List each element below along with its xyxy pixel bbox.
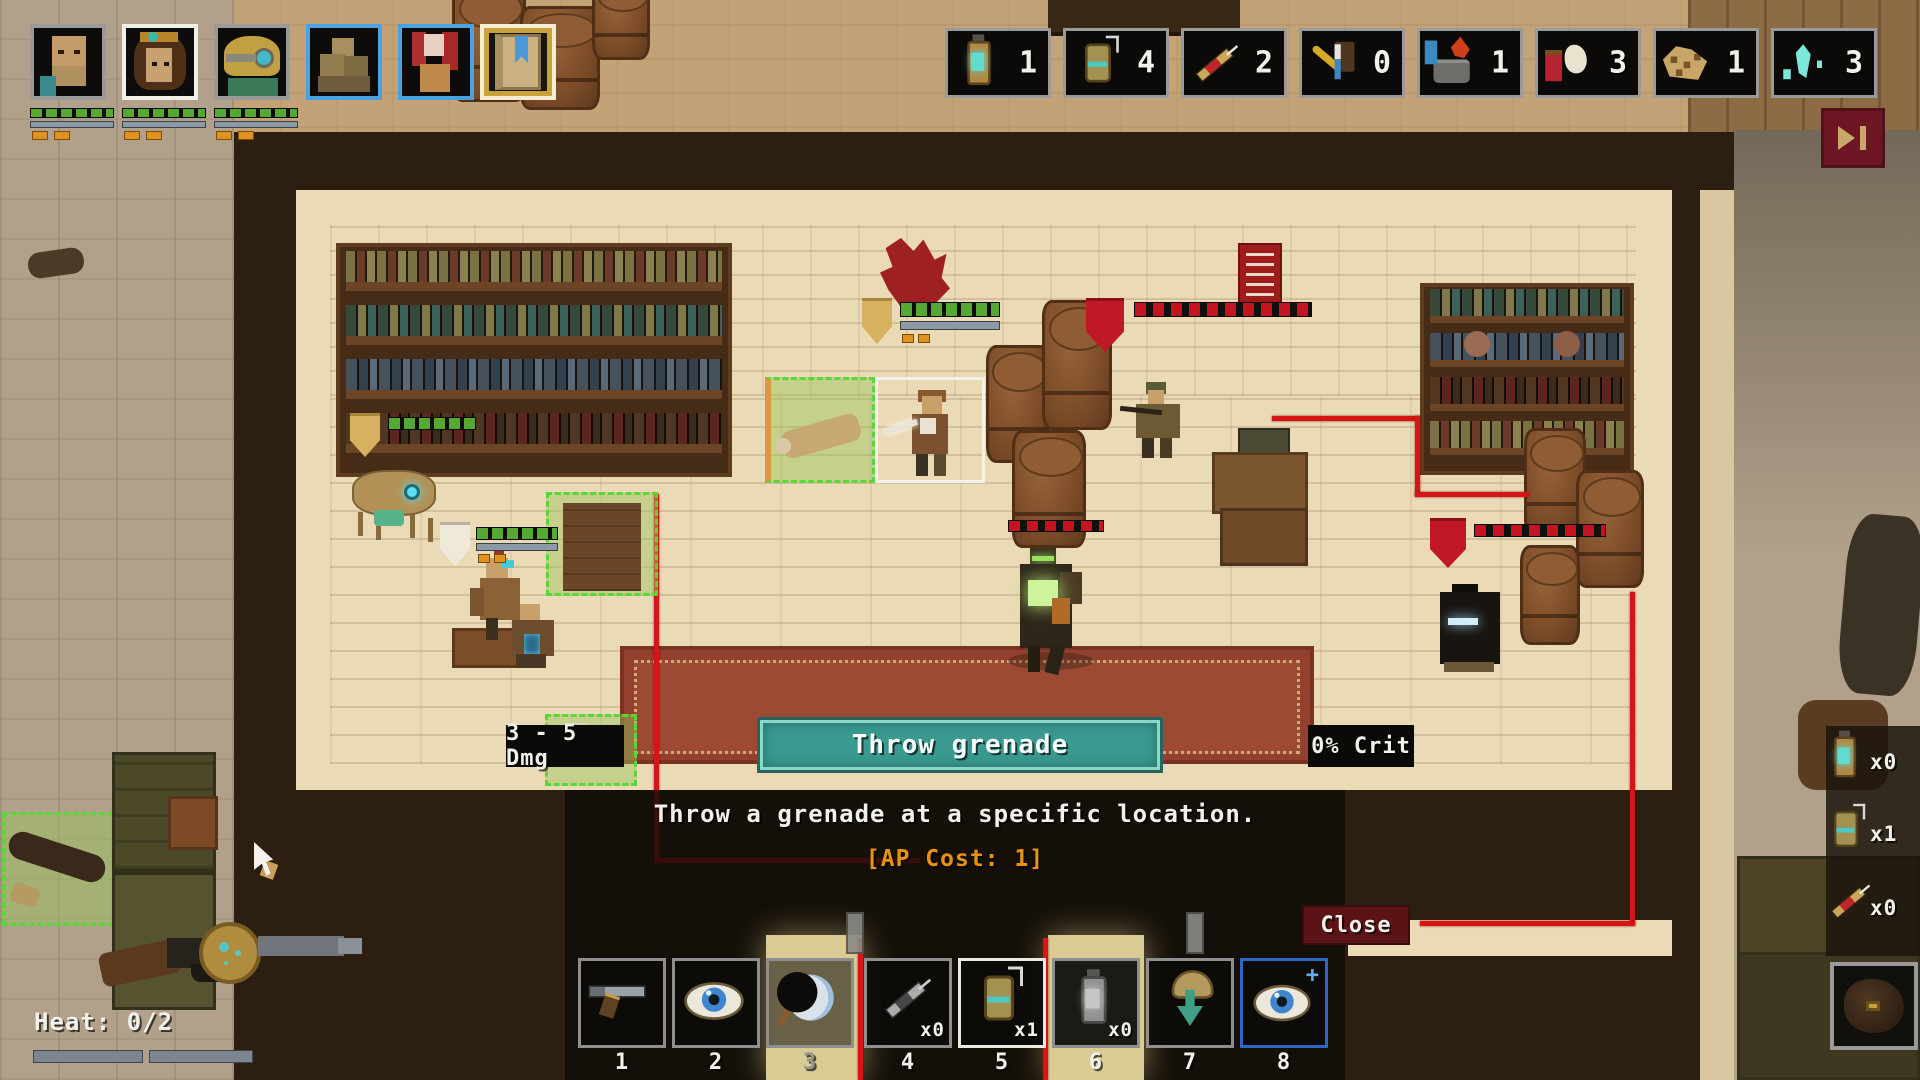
hotbar-key-7: 7 [1146, 1050, 1234, 1075]
ap-pip [146, 131, 162, 140]
crescent-moon-icon [782, 972, 833, 1026]
ap-pip [32, 131, 48, 140]
toolkit-icon [1310, 42, 1355, 85]
damage-value: 3 - 5 Dmg [506, 721, 624, 771]
heat-label: Heat: 0/2 [34, 1008, 173, 1036]
hotbar-slot-6[interactable]: x0 [1052, 958, 1140, 1048]
enemy-zone-line [858, 938, 863, 1080]
stim-syringe-icon [1192, 42, 1237, 85]
hotbar-slot-3[interactable] [766, 958, 854, 1048]
portrait-helmet-trooper[interactable] [214, 24, 290, 100]
end-turn-button[interactable] [1821, 108, 1885, 168]
crate [1212, 452, 1308, 514]
journal-button[interactable] [480, 24, 556, 100]
inventory-slot-medkit[interactable]: 3 [1535, 28, 1641, 98]
hotbar-count: x1 [1014, 1019, 1039, 1041]
hotbar-slot-2[interactable] [672, 958, 760, 1048]
enemy-zone-line [1415, 416, 1420, 496]
inventory-slot-crystal-shards[interactable]: 3 [1771, 28, 1877, 98]
inventory-slot-lantern[interactable]: 1 [945, 28, 1051, 98]
heat-segment [33, 1050, 143, 1063]
ally-armor-bar [900, 321, 1000, 330]
ap-pip [54, 131, 70, 140]
item-count: 3 [1609, 46, 1628, 81]
enemy-hp-bar [1134, 302, 1312, 317]
eye-icon [684, 982, 743, 1020]
door-prop [563, 503, 641, 591]
party-hp-bar [214, 108, 298, 118]
camp-stove-icon [1427, 43, 1475, 83]
visor-glow [1032, 556, 1054, 561]
device-glow [524, 634, 540, 654]
item-count: 3 [1845, 46, 1864, 81]
item-count: 1 [1491, 46, 1510, 81]
shotgun-pickup[interactable] [95, 916, 365, 996]
hotbar-key-2: 2 [672, 1050, 760, 1075]
enemy-zone-line [1630, 592, 1635, 925]
quick-item-grenade[interactable] [1836, 814, 1856, 844]
sack-icon [1844, 979, 1904, 1033]
ally-unit[interactable] [506, 598, 576, 678]
wolf-sprite [5, 828, 109, 886]
quick-item-count: x0 [1870, 896, 1897, 920]
wall-lamp [846, 912, 864, 954]
hotbar-count: x0 [920, 1019, 945, 1041]
quick-items-panel: x0 x1 x0 [1826, 726, 1920, 956]
hooded-arrow-icon [1168, 970, 1212, 1030]
mech-hound[interactable] [344, 452, 454, 548]
portrait-goggled-scout-selected[interactable] [122, 24, 198, 100]
barrel [592, 0, 650, 60]
party-armor-bar [122, 121, 206, 128]
bookshelf-left [336, 243, 732, 477]
crystal-shards-icon [1782, 44, 1822, 82]
ally-hp-bar [900, 302, 1000, 317]
grenade-icon [984, 976, 1014, 1021]
visor-glow [1448, 618, 1478, 625]
hotbar-slot-5-selected[interactable]: x1 [958, 958, 1046, 1048]
ap-pip [902, 334, 914, 343]
inventory-slot-saddle[interactable]: 1 [1653, 28, 1759, 98]
hotbar-slot-1[interactable] [578, 958, 666, 1048]
crit-label: 0% Crit [1308, 725, 1414, 767]
skill-name: Throw grenade [852, 730, 1069, 760]
cyan-eye [404, 484, 420, 500]
enemy-zone-line [1415, 492, 1529, 497]
quick-item-count: x1 [1870, 822, 1897, 846]
ap-pip [494, 554, 506, 563]
quick-item-count: x0 [1870, 750, 1897, 774]
ally-hp-bar [476, 527, 558, 540]
item-count: 2 [1255, 46, 1274, 81]
hotbar-key-8: 8 [1240, 1050, 1328, 1075]
crit-value: 0% Crit [1311, 734, 1411, 759]
quick-item-stim-syringe[interactable] [1830, 884, 1866, 918]
grenade-icon [1834, 811, 1858, 847]
game-screen: 3 - 5 Dmg 0% Crit Throw grenade Throw a … [0, 0, 1920, 1080]
ap-pip [124, 131, 140, 140]
corpse-sprite [779, 412, 864, 461]
close-button[interactable]: Close [1302, 905, 1410, 945]
hotbar-slot-7[interactable] [1146, 958, 1234, 1048]
portrait-supply-pile[interactable] [306, 24, 382, 100]
pistol-icon [589, 978, 652, 1020]
ap-pip [216, 131, 232, 140]
lantern-icon [1834, 737, 1856, 778]
medkit-icon [1545, 45, 1587, 81]
wall-lamp [1186, 912, 1204, 954]
skill-description: Throw a grenade at a specific location. [565, 800, 1345, 828]
hotbar-key-5: 5 [958, 1050, 1046, 1075]
item-count: 4 [1137, 46, 1156, 81]
hotbar-slot-8[interactable] [1240, 958, 1328, 1048]
ap-pip [238, 131, 254, 140]
loot-bag-slot[interactable] [1830, 962, 1918, 1050]
hotbar-key-3: 3 [766, 1050, 854, 1075]
ap-cost-label: [AP Cost: 1] [565, 846, 1345, 872]
enemy-gunman[interactable] [1434, 580, 1524, 680]
ally-armor-bar [476, 543, 558, 551]
hotbar-key-1: 1 [578, 1050, 666, 1075]
lantern-icon [967, 41, 990, 85]
enemy-hp-bar [1008, 520, 1104, 532]
hotbar-key-6: 6 [1052, 1050, 1140, 1075]
enemy-soldier[interactable] [1124, 378, 1220, 470]
grenade-icon [1085, 44, 1111, 83]
journal-book-icon [495, 34, 541, 90]
barrel [1520, 545, 1580, 645]
stim-syringe-icon [1827, 881, 1868, 920]
stim-syringe-icon [881, 975, 930, 1021]
shelf-pot [1464, 331, 1490, 357]
party-hp-bar [30, 108, 114, 118]
inventory-slot-camp-stove[interactable]: 1 [1417, 28, 1523, 98]
lantern-icon [1081, 976, 1106, 1024]
eye-plus-icon [1253, 985, 1310, 1021]
item-count: 0 [1373, 46, 1392, 81]
enemy-hp-bar [1474, 524, 1606, 537]
move-target-tile-wolf[interactable] [2, 812, 114, 926]
building-right-wall-strip [1700, 190, 1734, 1080]
enemy-zone-line [1420, 921, 1635, 926]
wanted-poster [1238, 243, 1282, 311]
quick-item-lantern[interactable] [1836, 740, 1854, 774]
saddle-icon [1663, 46, 1707, 80]
party-armor-bar [214, 121, 298, 128]
shelf-pot [1554, 331, 1580, 357]
crate [1220, 508, 1308, 566]
heat-segment [149, 1050, 253, 1063]
item-count: 1 [1019, 46, 1038, 81]
ap-pip [478, 554, 490, 563]
damage-label: 3 - 5 Dmg [506, 725, 624, 767]
ally-hp-bar [388, 417, 476, 430]
hotbar-count: x0 [1108, 1019, 1133, 1041]
inventory-slot-stim-syringe[interactable]: 2 [1181, 28, 1287, 98]
item-count: 1 [1727, 46, 1746, 81]
plus-icon [1306, 963, 1319, 988]
move-target-tile-corpse[interactable] [765, 377, 875, 483]
hotbar-key-4: 4 [864, 1050, 952, 1075]
active-player-unit[interactable] [1000, 540, 1110, 676]
portrait-bald-soldier[interactable] [30, 24, 106, 100]
close-button-label: Close [1320, 913, 1391, 938]
move-target-tile[interactable] [546, 492, 658, 596]
inventory-slot-toolkit[interactable]: 0 [1299, 28, 1405, 98]
portrait-red-banner-figure[interactable] [398, 24, 474, 100]
inventory-slot-grenade[interactable]: 4 [1063, 28, 1169, 98]
skip-forward-icon [1838, 126, 1868, 150]
ap-pip [918, 334, 930, 343]
party-hp-bar [122, 108, 206, 118]
ally-unit-selected[interactable] [884, 386, 980, 482]
enemy-zone-line [1272, 416, 1420, 421]
skill-name-button[interactable]: Throw grenade [760, 720, 1160, 770]
hotbar-slot-4[interactable]: x0 [864, 958, 952, 1048]
crate [168, 796, 218, 850]
party-armor-bar [30, 121, 114, 128]
